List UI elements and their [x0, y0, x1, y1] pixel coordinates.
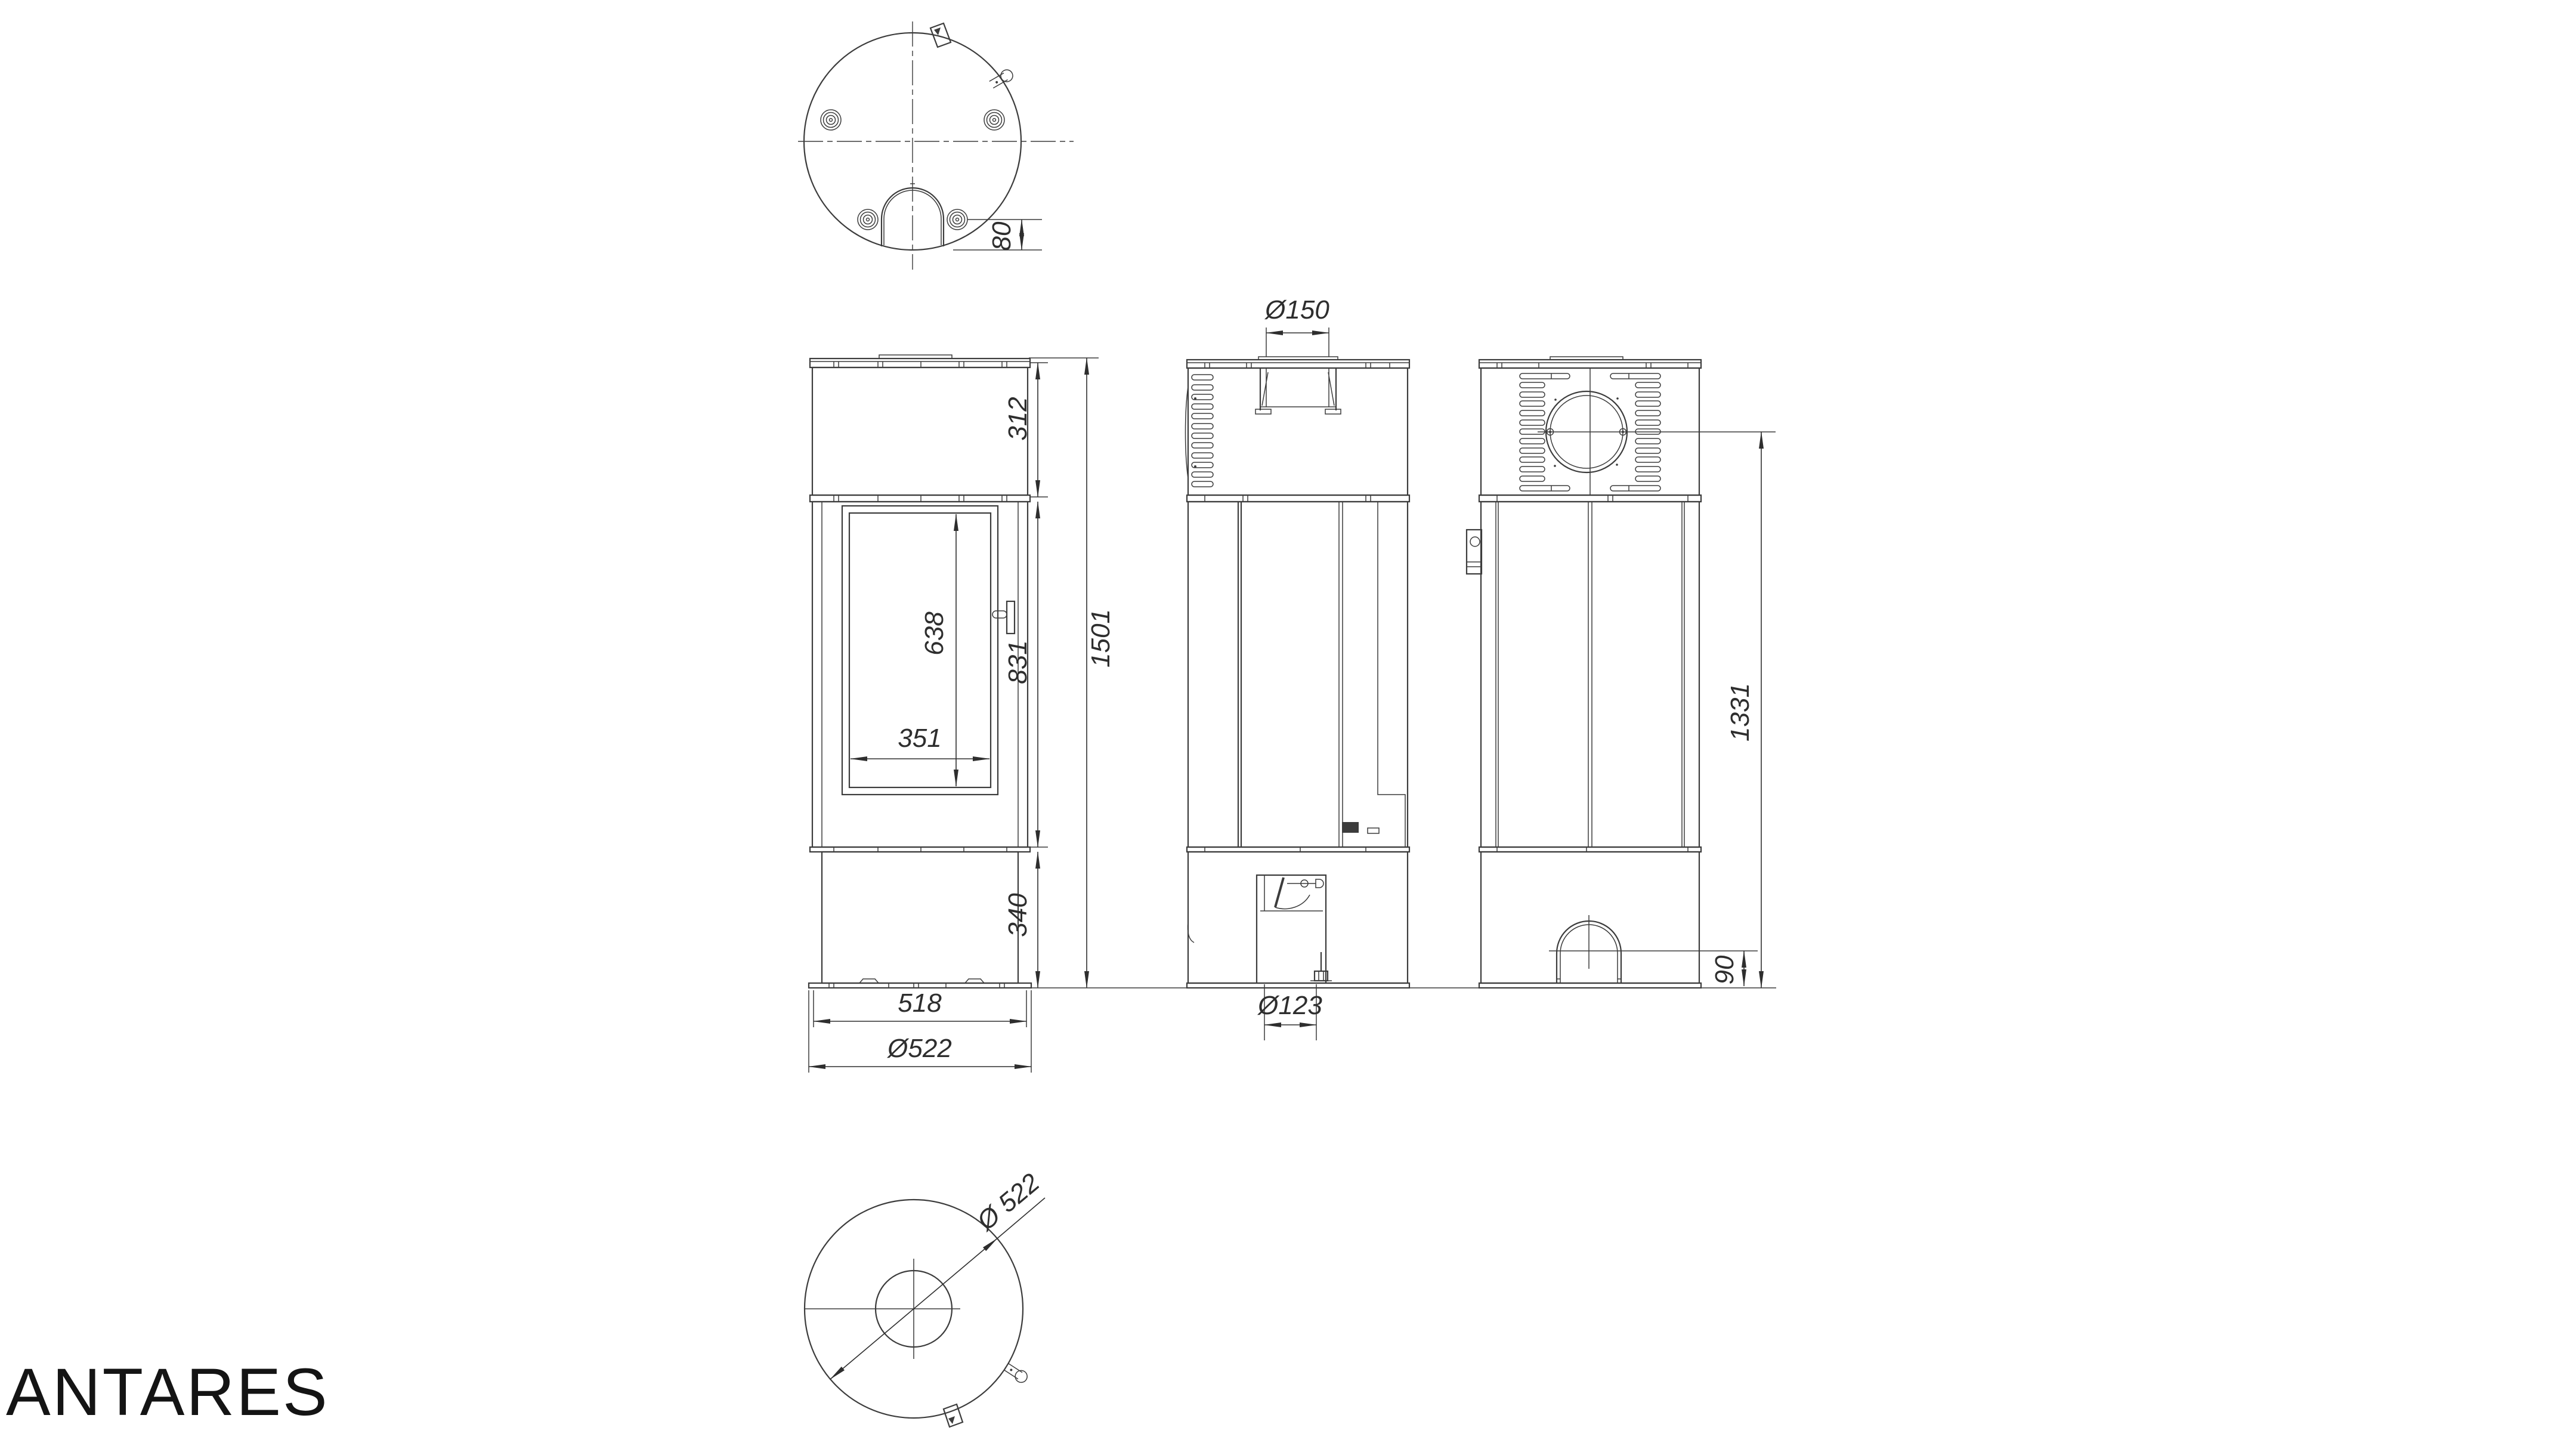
dim-label-1501: 1501: [1086, 609, 1115, 668]
dim-351: 351: [851, 724, 989, 759]
door-handle-tab: [930, 23, 951, 47]
base-section: [822, 852, 1018, 983]
door-latch: [1342, 822, 1359, 833]
plinth: [1479, 983, 1701, 988]
lower-separator-band: [1187, 847, 1409, 852]
side-view: Ø150 Ø123: [1186, 295, 1410, 1040]
top-drum-section: [812, 367, 1028, 495]
dim-label-831: 831: [1003, 640, 1032, 684]
drum-seam-lines: [822, 502, 1018, 847]
air-intake-pipe: [988, 67, 1015, 89]
base-section: [1188, 852, 1408, 983]
front-view: 312 831 340 1501 638 351 518: [809, 355, 1115, 1073]
flue-collar-plate-edge: [1550, 357, 1623, 360]
top-plate: [1187, 360, 1409, 368]
ash-compartment: [1257, 875, 1332, 983]
dim-label-90: 90: [1710, 955, 1739, 984]
top-drum-section: [1188, 368, 1408, 495]
dim-340: 340: [1003, 852, 1038, 988]
dim-label-312: 312: [1003, 397, 1032, 440]
dim-label-638: 638: [920, 611, 949, 656]
dim-518: 518: [814, 988, 1026, 1027]
leveling-bolt: [1310, 952, 1332, 981]
lower-separator-band: [810, 847, 1030, 852]
firebox-section: [812, 502, 1028, 847]
plinth: [1187, 983, 1409, 988]
dim-label-518: 518: [898, 988, 942, 1018]
dim-831: 831: [1003, 502, 1048, 847]
product-title: ANTARES: [6, 1355, 329, 1429]
dim-123: Ø123: [1257, 984, 1322, 1040]
top-plate: [1479, 360, 1701, 368]
door-edge-line: [1238, 502, 1241, 847]
antares-technical-drawing: 80 312 831: [0, 0, 2576, 1449]
plinth: [809, 983, 1031, 988]
upper-separator-band: [810, 495, 1030, 502]
dim-150: Ø150: [1264, 295, 1329, 357]
dim-label-80: 80: [987, 221, 1016, 251]
crosshair-centerlines: [805, 1259, 960, 1359]
hinge-bracket: [1467, 530, 1482, 574]
convection-vent-slots: [1192, 375, 1213, 487]
dim-1331: 1331: [1725, 432, 1761, 988]
dim-label-o522: Ø522: [886, 1034, 952, 1063]
base-section: [1481, 852, 1699, 983]
dim-90: 90: [1710, 951, 1744, 986]
panel-seam: [1339, 502, 1343, 847]
dim-label-o150: Ø150: [1264, 295, 1329, 325]
body-section: [1188, 502, 1408, 847]
dim-label-351: 351: [898, 724, 941, 753]
dim-312: 312: [1003, 363, 1048, 497]
upper-separator-band: [1479, 495, 1701, 502]
back-view: 90 1331: [1467, 357, 1776, 988]
upper-separator-band: [1187, 495, 1409, 502]
air-damper-mechanism: [1275, 878, 1323, 909]
dim-label-o522-diagonal: Ø 522: [970, 1168, 1045, 1237]
flue-collar-plate-edge: [1258, 357, 1338, 360]
panel-seams: [1496, 502, 1684, 847]
top-plate: [810, 359, 1030, 367]
door-glass-side-profile: [1378, 502, 1405, 847]
dim-label-o123: Ø123: [1257, 991, 1322, 1020]
door-handle: [992, 601, 1015, 634]
bottom-view-circular: 80: [798, 21, 1074, 270]
dim-label-340: 340: [1003, 893, 1032, 937]
flue-collar-section: [1255, 368, 1341, 414]
body-section: [1481, 502, 1699, 847]
dim-1501: 1501: [1086, 358, 1115, 988]
dim-label-1331: 1331: [1725, 683, 1755, 742]
lower-separator-band: [1479, 847, 1701, 852]
dim-diag-522: Ø 522: [830, 1168, 1045, 1379]
top-view-circular: Ø 522: [805, 1168, 1045, 1427]
